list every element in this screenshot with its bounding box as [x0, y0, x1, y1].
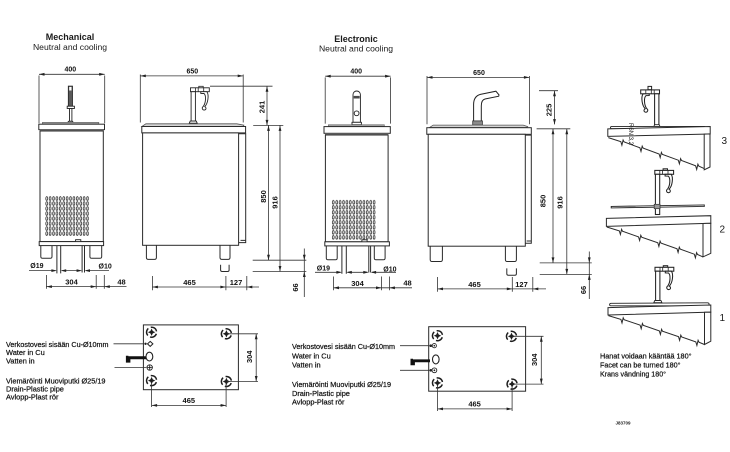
- svg-text:465: 465: [468, 280, 481, 289]
- svg-text:400: 400: [350, 69, 362, 76]
- svg-text:650: 650: [473, 70, 485, 77]
- svg-text:Mechanical: Mechanical: [46, 32, 95, 42]
- svg-text:916: 916: [271, 196, 280, 209]
- svg-text:2: 2: [720, 225, 726, 236]
- svg-text:J83709: J83709: [616, 421, 632, 426]
- svg-text:Facet can be turned 180°: Facet can be turned 180°: [600, 361, 681, 370]
- svg-text:66: 66: [291, 283, 300, 291]
- svg-text:916: 916: [556, 196, 565, 209]
- svg-text:Viemäröinti Muoviputki Ø25/19: Viemäröinti Muoviputki Ø25/19: [292, 380, 391, 389]
- svg-text:850: 850: [539, 195, 548, 208]
- svg-text:465: 465: [183, 396, 196, 405]
- svg-text:Verkostovesi sisään Cu-Ø10mm: Verkostovesi sisään Cu-Ø10mm: [292, 342, 395, 351]
- svg-text:3: 3: [722, 136, 728, 147]
- svg-text:48: 48: [117, 278, 125, 287]
- svg-text:304: 304: [530, 353, 539, 366]
- svg-text:850: 850: [259, 190, 268, 203]
- svg-text:Vatten in: Vatten in: [292, 360, 321, 369]
- svg-text:304: 304: [245, 350, 254, 363]
- svg-text:Ø10: Ø10: [99, 264, 112, 271]
- svg-text:241: 241: [258, 101, 267, 114]
- svg-text:Hanat voidaan kääntää 180°: Hanat voidaan kääntää 180°: [600, 352, 692, 361]
- svg-text:127: 127: [230, 278, 243, 287]
- svg-text:Avlopp-Plast rör: Avlopp-Plast rör: [292, 398, 345, 407]
- svg-text:465: 465: [468, 399, 481, 408]
- svg-text:400: 400: [64, 67, 76, 74]
- svg-text:48: 48: [403, 279, 411, 288]
- svg-text:Neutral and cooling: Neutral and cooling: [319, 44, 393, 54]
- svg-text:304: 304: [351, 279, 364, 288]
- svg-text:127: 127: [515, 280, 528, 289]
- svg-text:Water in Cu: Water in Cu: [292, 352, 331, 361]
- svg-text:Avlopp-Plast rör: Avlopp-Plast rör: [6, 393, 59, 402]
- svg-text:Electronic: Electronic: [334, 34, 378, 44]
- svg-text:1: 1: [720, 313, 726, 324]
- svg-text:R6N:3,2: R6N:3,2: [627, 123, 633, 146]
- svg-text:304: 304: [65, 278, 78, 287]
- svg-text:225: 225: [545, 104, 554, 117]
- svg-text:Krans vändning 180°: Krans vändning 180°: [600, 370, 666, 379]
- svg-text:Ø19: Ø19: [317, 266, 330, 273]
- svg-text:Neutral and cooling: Neutral and cooling: [33, 42, 107, 52]
- svg-text:650: 650: [186, 68, 198, 75]
- svg-text:465: 465: [183, 278, 196, 287]
- svg-text:Vatten in: Vatten in: [6, 356, 35, 365]
- svg-text:Drain-Plastic pipe: Drain-Plastic pipe: [292, 389, 350, 398]
- svg-text:Ø19: Ø19: [30, 263, 43, 270]
- svg-text:66: 66: [579, 286, 588, 294]
